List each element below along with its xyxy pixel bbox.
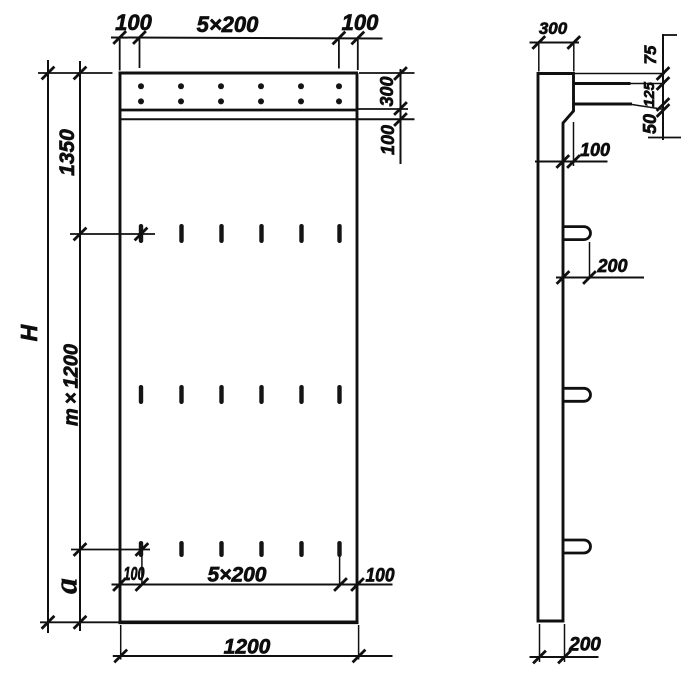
svg-text:300: 300 xyxy=(377,76,397,106)
svg-text:100: 100 xyxy=(124,564,145,584)
svg-text:1350: 1350 xyxy=(56,129,79,176)
svg-text:5×200: 5×200 xyxy=(208,564,267,587)
svg-text:200: 200 xyxy=(596,256,627,276)
svg-text:200: 200 xyxy=(568,635,601,656)
svg-text:100: 100 xyxy=(115,10,152,35)
svg-text:100: 100 xyxy=(342,10,379,35)
svg-text:125: 125 xyxy=(641,81,658,107)
svg-text:300: 300 xyxy=(539,19,568,38)
svg-text:1200: 1200 xyxy=(224,636,271,659)
svg-text:100: 100 xyxy=(580,140,610,160)
svg-text:75: 75 xyxy=(641,45,660,64)
svg-text:50: 50 xyxy=(640,114,660,134)
svg-text:H: H xyxy=(16,324,42,341)
svg-text:m × 1200: m × 1200 xyxy=(61,344,83,426)
svg-text:100: 100 xyxy=(366,566,395,587)
svg-text:100: 100 xyxy=(378,125,398,155)
svg-text:5×200: 5×200 xyxy=(197,12,260,37)
svg-text:a: a xyxy=(48,578,84,594)
